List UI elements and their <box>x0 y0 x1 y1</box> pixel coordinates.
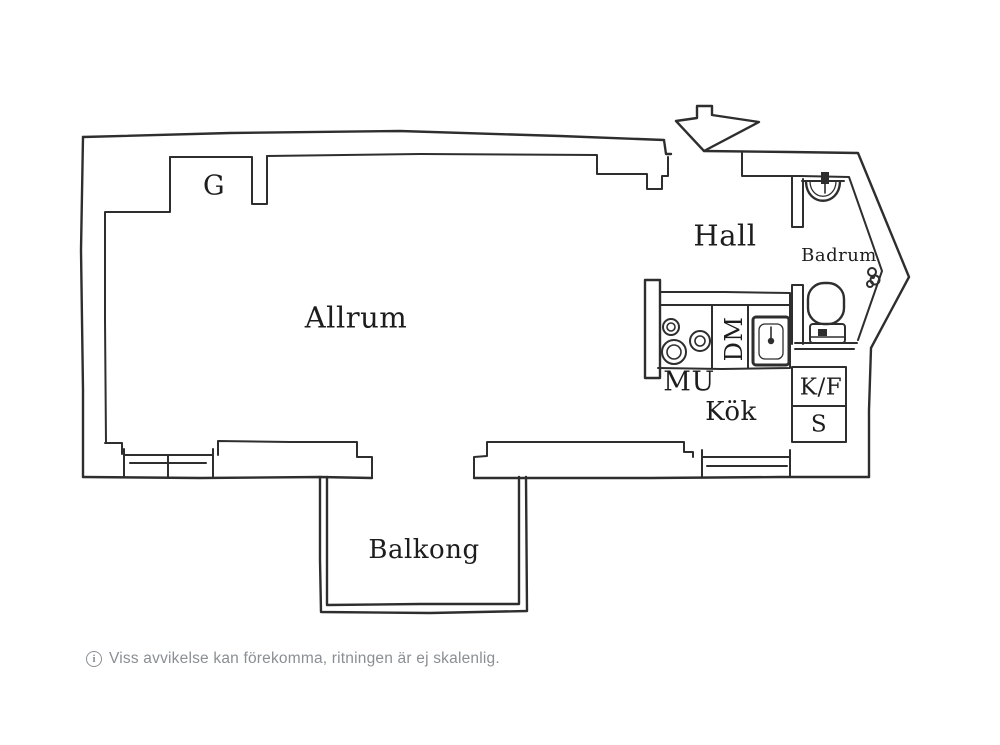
outer-wall-bottom-right <box>474 477 869 478</box>
kitchen-sink-icon <box>753 317 789 365</box>
inner-walls <box>105 153 882 477</box>
appliance-label-dm: DM <box>722 317 746 362</box>
burner-1 <box>663 319 679 335</box>
basin-tap <box>821 172 829 184</box>
door-lock-scribble-icon <box>867 268 880 287</box>
room-label-hall: Hall <box>693 222 756 251</box>
inner-wall-top <box>267 154 668 189</box>
scribble-3 <box>867 281 873 287</box>
kitchen-wall-stub <box>645 280 660 378</box>
disclaimer: i Viss avvikelse kan förekomma, ritninge… <box>86 650 500 668</box>
inner-wall-bottom-kitchen <box>474 442 693 477</box>
outer-wall-top <box>83 131 671 154</box>
burner-2-inner <box>695 336 705 346</box>
window-left-lines <box>124 449 213 477</box>
outer-wall-bottom-left <box>83 477 372 478</box>
appliance-label-s: S <box>811 414 827 437</box>
basin-bowl-inner <box>810 182 836 196</box>
burner-1-inner <box>667 323 675 331</box>
appliance-label-mu: MU <box>663 369 714 396</box>
toilet-icon <box>808 283 845 343</box>
floorplan-svg <box>0 0 1000 745</box>
stove-burners-icon <box>662 319 710 364</box>
room-label-balkong: Balkong <box>368 537 479 563</box>
appliance-label-kf: K/F <box>800 377 842 400</box>
outer-wall-right-angled <box>704 151 909 477</box>
inner-wall-left <box>105 157 170 454</box>
room-label-allrum: Allrum <box>305 304 408 333</box>
bathroom-wall-stub-upper <box>792 176 803 227</box>
burner-3-inner <box>667 345 681 359</box>
floorplan-image: G Allrum Hall Badrum MU DM Kök K/F S Bal… <box>0 0 1000 745</box>
bathroom-wall-lower <box>792 285 803 344</box>
entry-arrow-outline <box>676 106 759 151</box>
toilet-tank <box>810 324 845 343</box>
burner-2 <box>690 331 710 351</box>
toilet-bowl <box>808 283 844 324</box>
scribble-4 <box>871 275 875 279</box>
room-label-kok: Kök <box>705 399 757 425</box>
closet-label-g: G <box>203 173 225 200</box>
window-icon-right <box>702 450 790 477</box>
kitchen-stub-outline <box>645 280 660 378</box>
entry-door-arrow-icon <box>676 106 759 151</box>
outer-wall-left <box>81 137 83 477</box>
inner-wall-bottom-middle <box>218 441 372 477</box>
window-icon-left <box>124 449 213 477</box>
disclaimer-text: Viss avvikelse kan förekomma, ritningen … <box>109 650 500 668</box>
burner-3 <box>662 340 686 364</box>
toilet-button <box>818 329 827 336</box>
basin-bowl <box>806 182 840 201</box>
room-label-badrum: Badrum <box>801 247 877 265</box>
window-right-lines <box>702 450 790 477</box>
info-icon: i <box>86 651 102 667</box>
